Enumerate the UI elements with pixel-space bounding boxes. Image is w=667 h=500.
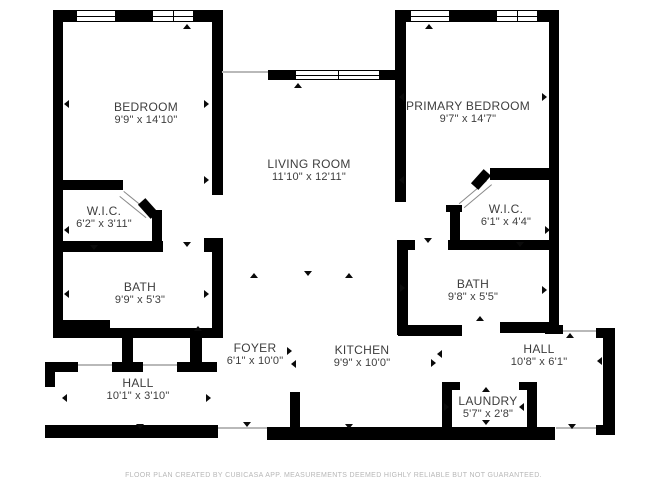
room-name: BATH [115,280,165,294]
wall [596,425,615,435]
room-label-foyer: FOYER 6'1" x 10'0" [227,341,284,368]
wall [204,238,212,252]
room-label-bath-right: BATH 9'8" x 5'5" [448,277,498,304]
wall [290,392,300,429]
window [152,10,194,22]
room-name: KITCHEN [334,343,391,357]
door-opening-line [563,330,596,332]
door-opening-line [143,364,177,366]
window [496,10,538,22]
wall [45,425,218,438]
footer-disclaimer: FLOOR PLAN CREATED BY CUBICASA APP. MEAS… [0,472,667,479]
room-label-bedroom: BEDROOM 9'9" x 14'10" [114,100,178,127]
opening-marker-icon [566,333,574,338]
door-opening-line [218,427,267,429]
window [76,10,116,22]
opening-marker-icon [424,238,432,243]
room-name: LAUNDRY [458,394,517,408]
door-opening-line [556,427,596,429]
opening-marker-icon [542,286,547,294]
room-name: PRIMARY BEDROOM [406,99,530,113]
wall [53,241,163,252]
room-name: W.I.C. [481,202,531,216]
floor-plan: BEDROOM 9'9" x 14'10" PRIMARY BEDROOM 9'… [0,0,667,500]
wall [450,207,460,243]
wall [519,382,537,390]
room-name: BATH [448,277,498,291]
room-dims: 9'9" x 14'10" [114,114,178,127]
opening-marker-icon [400,284,405,292]
opening-marker-icon [425,24,433,29]
opening-marker-icon [304,271,312,276]
opening-marker-icon [545,226,550,234]
opening-marker-icon [476,316,484,321]
room-name: HALL [511,342,568,356]
opening-marker-icon [64,290,69,298]
room-dims: 9'7" x 14'7" [406,113,530,126]
room-label-bath-left: BATH 9'9" x 5'3" [115,280,165,307]
wall [122,338,133,365]
opening-marker-icon [90,245,98,250]
room-dims: 6'1" x 4'4" [481,216,531,229]
room-label-hall-right: HALL 10'8" x 6'1" [511,342,568,369]
opening-marker-icon [597,357,602,365]
room-dims: 10'1" x 3'10" [107,390,170,403]
window [410,10,450,22]
wall [398,325,462,336]
wall [190,338,202,365]
room-dims: 9'8" x 5'5" [448,291,498,304]
room-label-living-room: LIVING ROOM 11'10" x 12'11" [267,157,350,184]
opening-marker-icon [206,394,211,402]
opening-marker-icon [62,394,67,402]
opening-marker-icon [287,347,292,355]
wall [446,205,462,212]
room-dims: 5'7" x 2'8" [458,408,517,421]
room-dims: 6'1" x 10'0" [227,355,284,368]
wall [603,328,615,435]
room-label-laundry: LAUNDRY 5'7" x 2'8" [458,394,517,421]
wall [490,168,558,180]
opening-marker-icon [519,403,524,411]
opening-marker-icon [204,100,209,108]
wall [45,362,55,387]
opening-marker-icon [243,422,251,427]
wall [395,10,406,202]
opening-marker-icon [294,83,302,88]
room-name: HALL [107,376,170,390]
wall [177,362,217,372]
wall [448,240,558,250]
opening-marker-icon [437,350,442,358]
wall [53,10,63,338]
opening-marker-icon [431,359,436,367]
wall [442,382,460,390]
opening-marker-icon [204,176,209,184]
wall [267,427,555,440]
room-name: W.I.C. [76,204,132,218]
opening-marker-icon [482,387,490,392]
room-label-kitchen: KITCHEN 9'9" x 10'0" [334,343,391,370]
opening-marker-icon [345,424,353,429]
opening-marker-icon [183,242,191,247]
opening-marker-icon [250,273,258,278]
wall [112,362,143,372]
opening-marker-icon [64,100,69,108]
wall [596,328,615,338]
opening-marker-icon [183,24,191,29]
opening-marker-icon [542,93,547,101]
window [295,70,380,80]
room-name: BEDROOM [114,100,178,114]
room-dims: 10'8" x 6'1" [511,356,568,369]
opening-marker-icon [204,290,209,298]
opening-marker-icon [516,242,524,247]
door-opening-line [78,364,112,366]
room-label-primary-bedroom: PRIMARY BEDROOM 9'7" x 14'7" [406,99,530,126]
opening-marker-icon [399,93,404,101]
opening-marker-icon [345,273,353,278]
opening-marker-icon [291,360,296,368]
room-name: FOYER [227,341,284,355]
room-label-wic-right: W.I.C. 6'1" x 4'4" [481,202,531,229]
room-dims: 9'9" x 10'0" [334,357,391,370]
opening-marker-icon [194,326,202,331]
wall [545,325,563,334]
room-dims: 11'10" x 12'11" [267,171,350,184]
wall [58,328,216,338]
opening-marker-icon [64,226,69,234]
room-dims: 6'2" x 3'11" [76,218,132,231]
room-label-hall-bottom: HALL 10'1" x 3'10" [107,376,170,403]
opening-marker-icon [444,403,449,411]
room-dims: 9'9" x 5'3" [115,294,165,307]
opening-marker-icon [568,424,576,429]
wall [212,238,223,338]
room-label-wic-left: W.I.C. 6'2" x 3'11" [76,204,132,231]
door-opening-line [222,71,268,73]
opening-marker-icon [136,424,144,429]
wall [212,10,223,195]
wall [397,240,415,250]
opening-marker-icon [399,176,404,184]
wall [53,180,123,190]
room-name: LIVING ROOM [267,157,350,171]
